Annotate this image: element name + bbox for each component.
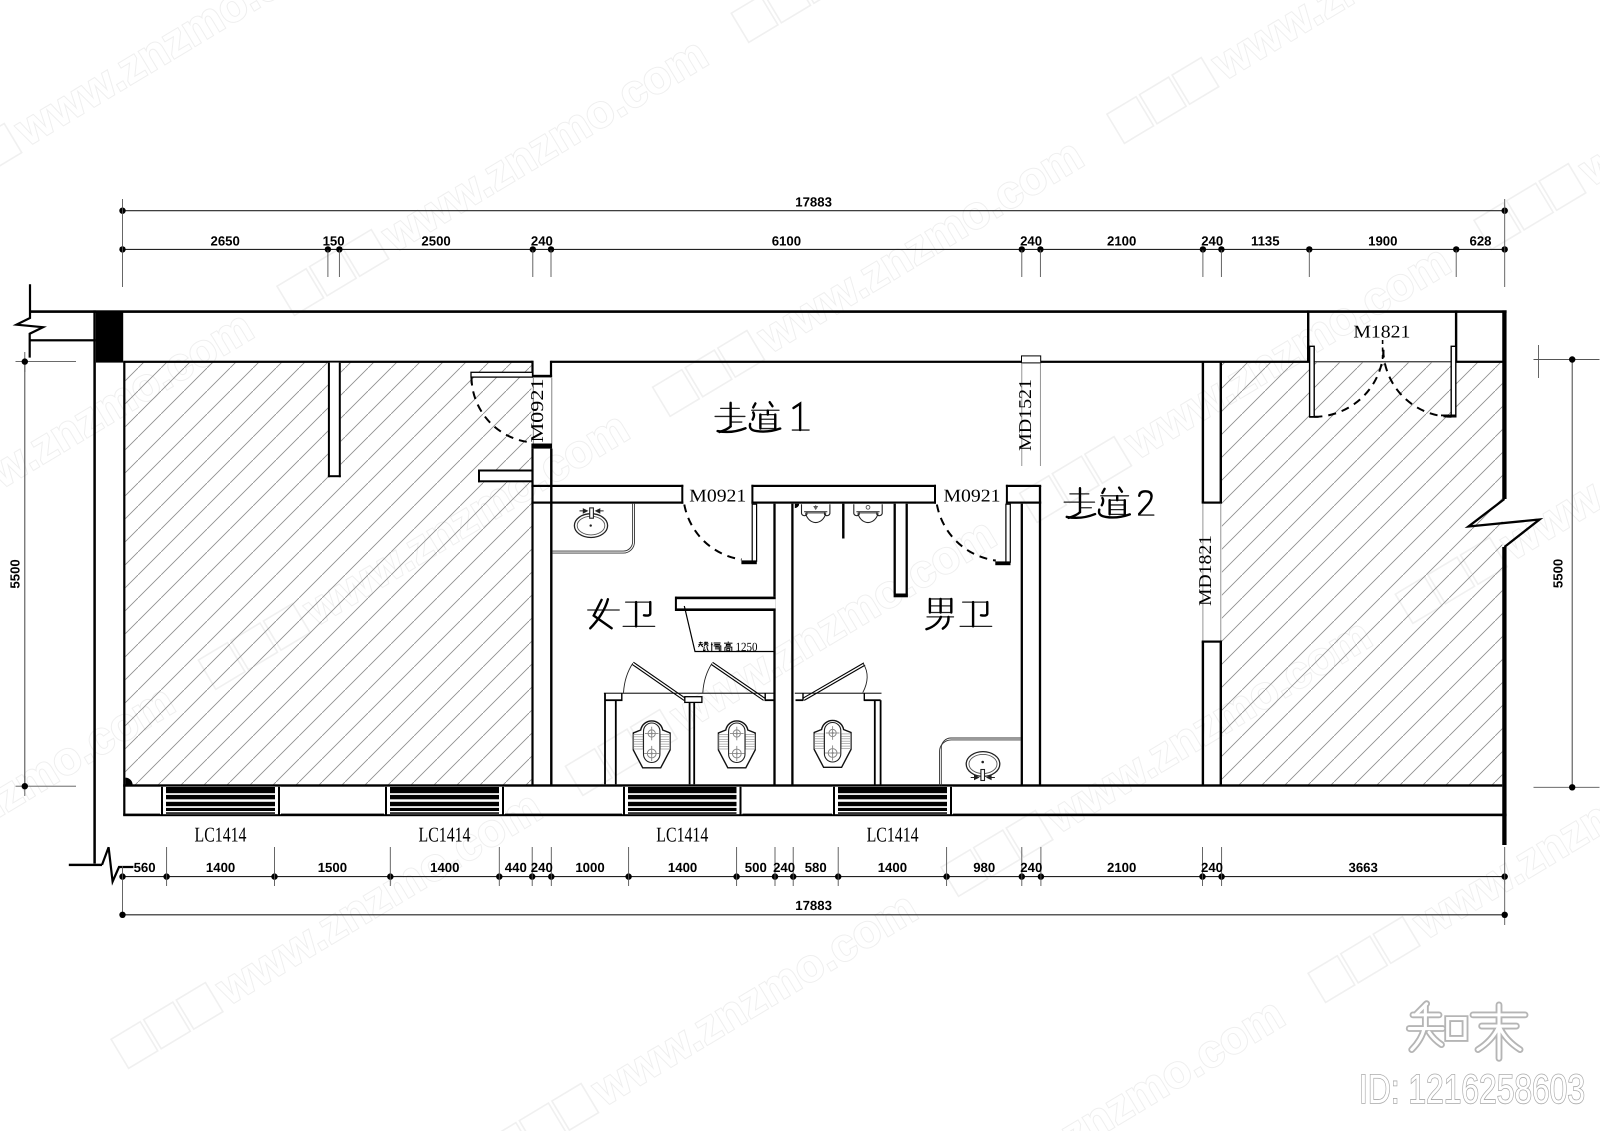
svg-text:MD1521: MD1521 — [1015, 379, 1035, 451]
svg-text:6100: 6100 — [772, 234, 801, 249]
svg-text:440: 440 — [505, 860, 527, 875]
svg-text:2100: 2100 — [1107, 860, 1136, 875]
svg-text:240: 240 — [1020, 234, 1042, 249]
svg-text:1500: 1500 — [318, 860, 347, 875]
svg-text:240: 240 — [1020, 860, 1042, 875]
svg-text:150: 150 — [323, 234, 345, 249]
svg-text:1000: 1000 — [575, 860, 604, 875]
svg-text:ID: 1216258603: ID: 1216258603 — [1359, 1066, 1585, 1112]
svg-text:MD1821: MD1821 — [1195, 535, 1215, 606]
svg-text:3663: 3663 — [1349, 860, 1378, 875]
svg-text:17883: 17883 — [795, 898, 832, 913]
svg-text:M0921: M0921 — [944, 486, 1001, 506]
svg-text:M1821: M1821 — [1353, 322, 1410, 342]
svg-text:1135: 1135 — [1251, 234, 1280, 249]
svg-text:LC1414: LC1414 — [195, 823, 247, 847]
svg-text:1900: 1900 — [1368, 234, 1397, 249]
svg-text:1250: 1250 — [736, 640, 758, 654]
svg-text:1400: 1400 — [430, 860, 459, 875]
svg-text:240: 240 — [1201, 860, 1223, 875]
svg-text:17883: 17883 — [795, 195, 832, 210]
svg-text:1400: 1400 — [206, 860, 235, 875]
svg-text:2650: 2650 — [211, 234, 240, 249]
svg-text:560: 560 — [134, 860, 156, 875]
svg-text:M0921: M0921 — [527, 379, 547, 443]
svg-text:240: 240 — [1201, 234, 1223, 249]
svg-text:628: 628 — [1469, 234, 1491, 249]
svg-text:1400: 1400 — [668, 860, 697, 875]
svg-text:LC1414: LC1414 — [656, 823, 708, 847]
svg-text:M0921: M0921 — [689, 486, 746, 506]
svg-text:2100: 2100 — [1107, 234, 1136, 249]
svg-text:240: 240 — [773, 860, 795, 875]
svg-text:LC1414: LC1414 — [419, 823, 471, 847]
svg-text:2500: 2500 — [421, 234, 450, 249]
svg-text:500: 500 — [745, 860, 767, 875]
svg-text:LC1414: LC1414 — [867, 823, 919, 847]
svg-text:240: 240 — [531, 234, 553, 249]
svg-text:5500: 5500 — [1551, 559, 1566, 588]
svg-text:240: 240 — [531, 860, 553, 875]
svg-text:580: 580 — [805, 860, 827, 875]
svg-text:980: 980 — [973, 860, 995, 875]
svg-text:1400: 1400 — [878, 860, 907, 875]
svg-text:5500: 5500 — [8, 559, 23, 588]
